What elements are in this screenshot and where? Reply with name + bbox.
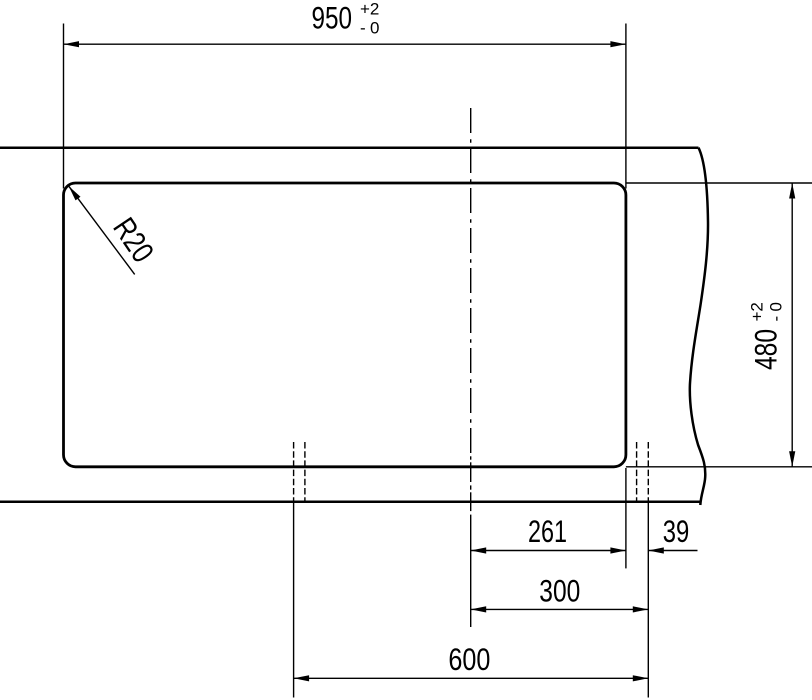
svg-text:261: 261 <box>528 513 567 549</box>
svg-text:600: 600 <box>448 641 490 677</box>
svg-text:-0: -0 <box>360 19 380 38</box>
svg-text:950: 950 <box>312 0 353 36</box>
svg-text:-0: -0 <box>766 302 785 322</box>
svg-text:+2: +2 <box>747 302 766 321</box>
svg-text:300: 300 <box>539 573 580 609</box>
svg-text:480: 480 <box>747 329 783 370</box>
svg-text:39: 39 <box>663 513 690 549</box>
svg-text:+2: +2 <box>360 0 379 19</box>
